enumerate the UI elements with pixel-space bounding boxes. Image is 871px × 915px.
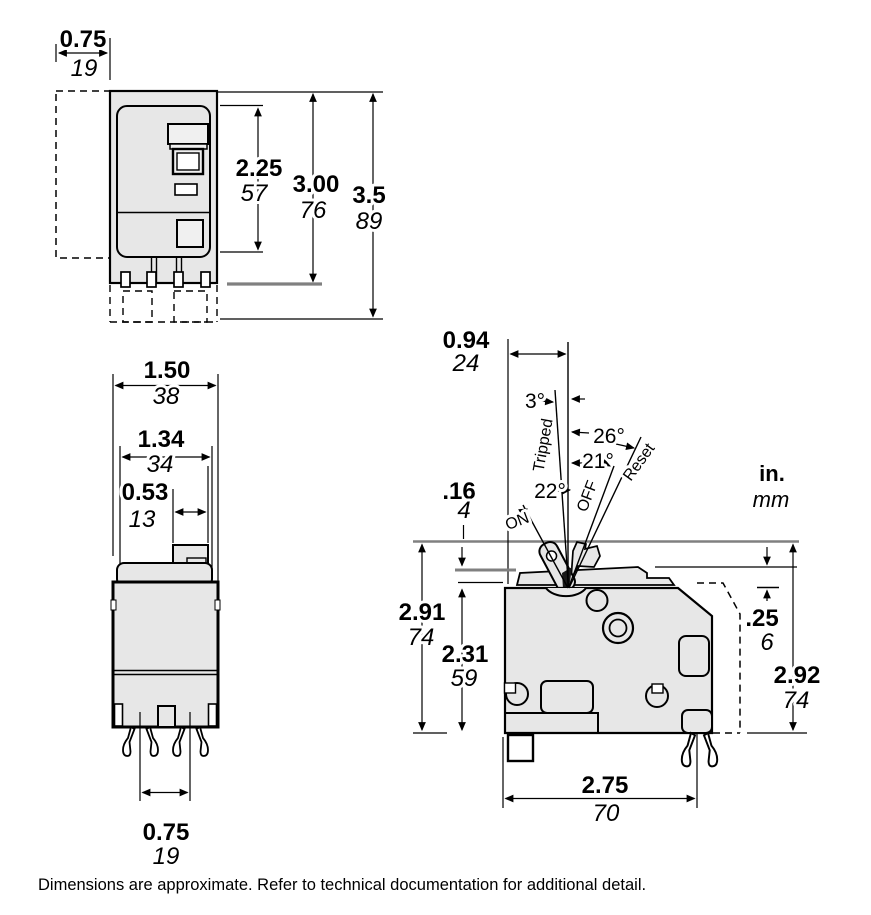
side-clip-base: [682, 710, 712, 733]
bottom-corner-tab-right: [209, 704, 217, 726]
angle-on: 22°: [534, 480, 566, 503]
front-test-button: [177, 220, 203, 247]
dim-depth-in: 2.75: [582, 772, 629, 799]
dim-tab-width-in: 0.53: [122, 479, 169, 506]
dim-rear-step-in: .25: [745, 605, 778, 632]
side-body-outline: [505, 588, 712, 733]
mounting-clips: [123, 727, 208, 756]
dim-body-height-in: 3.00: [293, 171, 340, 198]
dim-height-to-handle-in: 2.91: [399, 599, 446, 626]
side-boss-right-notch: [652, 684, 663, 693]
bottom-mounting-tab: [173, 545, 208, 564]
side-foot: [508, 735, 533, 761]
dim-tab-width-mm: 13: [129, 506, 156, 533]
side-view: 0.94 24 3° 26° 21° 22° Tripped OFF Reset…: [399, 327, 821, 827]
dim-side-body-height-mm: 59: [451, 665, 478, 692]
dim-cap-step-mm: 4: [457, 497, 470, 524]
front-toggle-handle: [168, 124, 208, 174]
side-boss-left-notch: [505, 683, 516, 693]
front-phantom-plug-area: [110, 285, 217, 322]
dim-clip-spacing-mm: 19: [153, 843, 180, 870]
angle-tripped: 3°: [525, 390, 545, 413]
side-top-boss: [587, 590, 608, 611]
dim-overall-width-mm: 38: [153, 383, 180, 410]
side-clearance-phantom-box: [56, 91, 110, 258]
angle-callout-arrows: [512, 399, 634, 517]
front-view: 0.75 19 2.25 57 3.00 76 3.5 89: [56, 26, 386, 322]
bottom-side-notch-right: [215, 600, 220, 610]
dim-body-height-mm: 76: [300, 197, 327, 224]
dim-overall-width-in: 1.50: [144, 357, 191, 384]
bottom-view: 1.50 38 1.34 34 0.53 13 0.75 19: [111, 357, 220, 870]
bottom-center-tab: [158, 706, 175, 727]
dim-body-width-mm: 34: [147, 451, 174, 478]
bottom-corner-tab-left: [115, 704, 123, 726]
angle-off: 21°: [582, 450, 614, 473]
dim-overall-height-in: 3.5: [352, 182, 385, 209]
breaker-dimension-diagram: 0.75 19 2.25 57 3.00 76 3.5 89: [0, 0, 871, 915]
dim-overall-height-mm: 89: [356, 208, 383, 235]
dim-depth-mm: 70: [593, 800, 620, 827]
dim-face-height-mm: 57: [241, 180, 269, 207]
angle-reset: 26°: [593, 425, 625, 448]
dim-body-width-in: 1.34: [138, 426, 185, 453]
side-mounting-clips: [682, 733, 717, 766]
side-cap-plate: [517, 567, 674, 585]
dim-side-body-height-in: 2.31: [442, 641, 489, 668]
dim-handle-offset-mm: 24: [452, 350, 480, 377]
caption: Dimensions are approximate. Refer to tec…: [38, 876, 646, 894]
dim-side-clearance-in: 0.75: [60, 26, 107, 53]
front-label-window: [175, 184, 197, 195]
dimension-drawing-page: 0.75 19 2.25 57 3.00 76 3.5 89: [0, 0, 871, 915]
dim-side-overall-height-mm: 74: [783, 687, 810, 714]
label-tripped: Tripped: [531, 417, 557, 473]
dim-rear-step-mm: 6: [760, 629, 774, 656]
bottom-side-notch-left: [111, 600, 116, 610]
units-inches-label: in.: [759, 461, 785, 486]
dim-height-to-handle-mm: 74: [408, 624, 435, 651]
dim-clip-spacing-in: 0.75: [143, 819, 190, 846]
dim-face-height-in: 2.25: [236, 155, 283, 182]
dim-side-overall-height-in: 2.92: [774, 662, 821, 689]
units-legend: in. mm: [753, 461, 790, 512]
dim-side-clearance-mm: 19: [71, 55, 98, 82]
units-mm-label: mm: [753, 487, 790, 512]
